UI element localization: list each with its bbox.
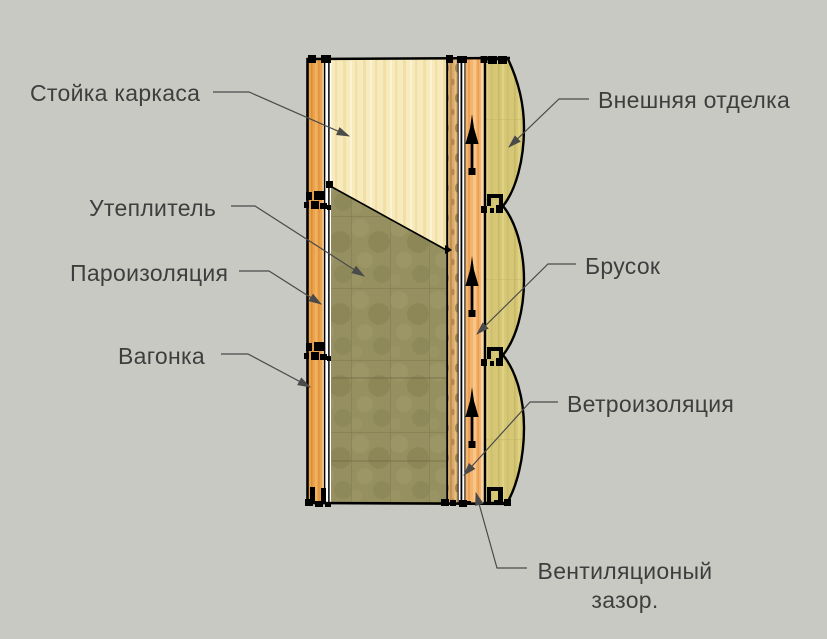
wall-top-outline xyxy=(307,58,511,59)
label-vent-gap-line2: зазор. xyxy=(530,586,720,615)
edge-marker xyxy=(498,56,507,64)
label-insulation: Утеплитель xyxy=(89,195,216,221)
wall-layers xyxy=(307,58,525,504)
edge-marker xyxy=(481,56,488,63)
leader-lining xyxy=(221,354,310,387)
edge-marker xyxy=(441,499,449,506)
label-vapor-barrier: Пароизоляция xyxy=(70,260,228,286)
edge-marker xyxy=(308,55,316,63)
edge-marker xyxy=(321,55,331,63)
rough-batten-layer xyxy=(448,59,458,504)
label-stud: Стойка каркаса xyxy=(30,80,200,106)
label-lining: Вагонка xyxy=(118,343,205,369)
edge-marker xyxy=(446,55,453,63)
label-vent-gap: Вентиляционый зазор. xyxy=(530,557,720,615)
edge-marker xyxy=(488,56,497,64)
label-wind-barrier: Ветроизоляция xyxy=(567,391,734,417)
label-vent-gap-line1: Вентиляционый xyxy=(530,557,720,586)
edge-marker xyxy=(459,500,467,507)
exterior-siding-layer xyxy=(485,59,524,503)
edge-marker xyxy=(450,500,456,506)
label-batten: Брусок xyxy=(585,253,660,279)
label-exterior-finish: Внешняя отделка xyxy=(598,87,790,113)
diagram-canvas: Стойка каркаса Утеплитель Пароизоляция В… xyxy=(0,0,827,639)
diagonal-endpoint-marker xyxy=(326,181,333,188)
lining-layer xyxy=(308,59,323,504)
edge-marker xyxy=(467,501,471,505)
edge-marker xyxy=(457,56,467,63)
